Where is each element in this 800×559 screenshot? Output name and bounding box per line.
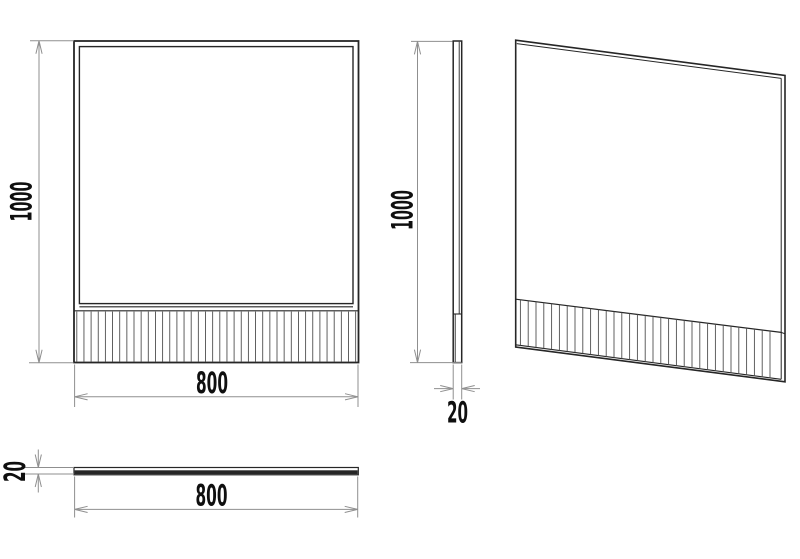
- front-width-dimension: 800: [75, 365, 358, 408]
- drawing-canvas: 1000 800 1000 20 20: [0, 0, 800, 559]
- front-view: [74, 41, 359, 363]
- top-length-dimension: 800: [75, 477, 358, 518]
- top-view: [74, 468, 358, 475]
- front-height-label: 1000: [5, 182, 39, 222]
- perspective-fluted-band: [520, 300, 770, 378]
- perspective-outline: [516, 40, 785, 382]
- technical-drawing-svg: 1000 800 1000 20 20: [0, 0, 800, 559]
- top-profile-thick-edge: [75, 470, 358, 474]
- side-thickness-label: 20: [447, 396, 468, 430]
- top-thickness-dimension: 20: [0, 450, 74, 493]
- front-height-dimension: 1000: [5, 41, 75, 363]
- perspective-flute-top-line: [516, 299, 782, 332]
- side-height-dimension: 1000: [386, 41, 462, 362]
- front-width-label: 800: [196, 366, 228, 400]
- side-height-label: 1000: [386, 190, 420, 230]
- front-fluted-band: [77, 312, 356, 362]
- side-thickness-dimension: 20: [434, 365, 480, 430]
- perspective-top-edge-line: [517, 44, 781, 79]
- front-inner-frame: [79, 47, 353, 304]
- top-length-label: 800: [196, 479, 228, 513]
- perspective-view: [516, 40, 785, 382]
- top-thickness-label: 20: [0, 461, 32, 482]
- front-outer-frame: [74, 41, 359, 363]
- side-view: [453, 41, 462, 363]
- perspective-flute-bottom-line: [516, 345, 782, 380]
